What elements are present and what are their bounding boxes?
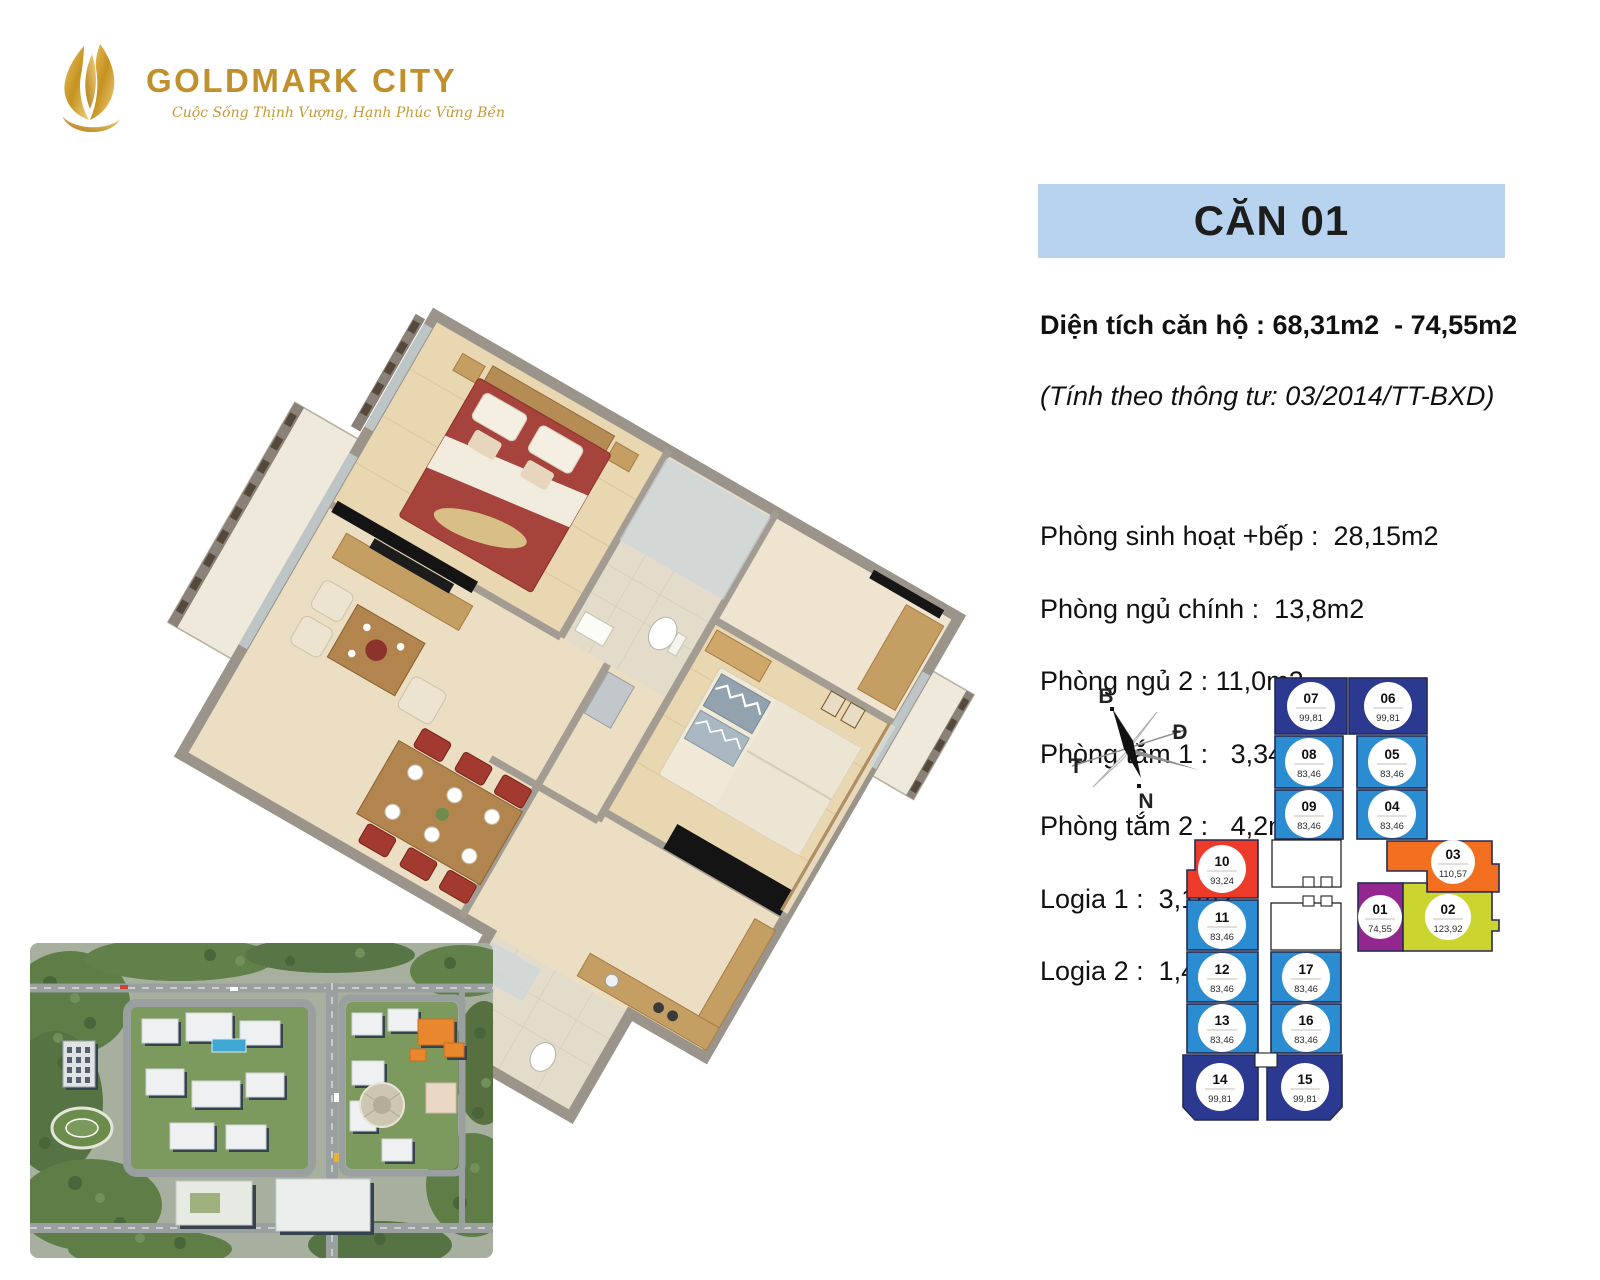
compass-south-label: N <box>1138 790 1153 813</box>
room-area-item: Phòng sinh hoạt +bếp : 28,15m2 <box>1040 518 1520 555</box>
unit-area: 110,57 <box>1439 869 1467 880</box>
unit-area: 83,46 <box>1380 821 1404 832</box>
unit-number: 12 <box>1214 962 1229 977</box>
unit-number: 17 <box>1298 962 1313 977</box>
unit-number: 07 <box>1303 691 1318 706</box>
unit-area: 93,24 <box>1210 876 1234 887</box>
school-building <box>176 1181 256 1229</box>
total-area-line: Diện tích căn hộ : 68,31m2 - 74,55m2 <box>1040 308 1520 342</box>
unit-10: 1093,24 <box>1187 840 1258 898</box>
swimming-pool <box>212 1039 246 1052</box>
brand-tagline: Cuộc Sống Thịnh Vượng, Hạnh Phúc Vững Bề… <box>172 105 505 121</box>
unit-number: 01 <box>1372 902 1388 917</box>
site-aerial-map <box>30 943 493 1258</box>
unit-12: 1283,46 <box>1187 952 1258 1002</box>
unit-02: 02123,92 <box>1403 883 1499 951</box>
room-area-item: Phòng ngủ chính : 13,8m2 <box>1040 591 1520 628</box>
corridor-end <box>1255 1053 1277 1067</box>
elevator <box>1321 896 1332 906</box>
office-building <box>63 1041 98 1090</box>
unit-number: 15 <box>1297 1072 1313 1087</box>
unit-title-bar: CĂN 01 <box>1038 184 1505 258</box>
unit-number: 14 <box>1212 1072 1228 1087</box>
unit-area: 83,46 <box>1294 1035 1318 1046</box>
unit-04: 0483,46 <box>1357 790 1427 839</box>
unit-number: 13 <box>1214 1013 1230 1028</box>
unit-11: 1183,46 <box>1187 900 1258 950</box>
brand-name: GOLDMARK CITY <box>146 62 505 100</box>
lobby-core-lower <box>1271 903 1341 950</box>
unit-number: 05 <box>1384 747 1400 762</box>
unit-area: 123,92 <box>1433 924 1462 935</box>
unit-area: 83,46 <box>1380 769 1404 780</box>
unit-area: 99,81 <box>1376 713 1400 724</box>
brand-logo: GOLDMARK CITY Cuộc Sống Thịnh Vượng, Hạn… <box>52 36 505 136</box>
unit-08: 0883,46 <box>1275 736 1343 788</box>
unit-09: 0983,46 <box>1275 790 1343 839</box>
unit-number: 16 <box>1298 1013 1314 1028</box>
unit-13: 1383,46 <box>1187 1004 1258 1053</box>
unit-15: 1599,81 <box>1267 1055 1342 1120</box>
unit-area: 83,46 <box>1210 1035 1234 1046</box>
compass-west-label: T <box>1070 755 1083 778</box>
unit-16: 1683,46 <box>1271 1004 1341 1053</box>
unit-area: 99,81 <box>1208 1094 1232 1105</box>
unit-number: 03 <box>1445 847 1461 862</box>
brand-text-block: GOLDMARK CITY Cuộc Sống Thịnh Vượng, Hạn… <box>146 36 505 121</box>
unit-06: 0699,81 <box>1349 678 1427 734</box>
elevator <box>1303 896 1314 906</box>
lotus-logo-icon <box>52 36 132 136</box>
unit-area: 83,46 <box>1210 932 1234 943</box>
unit-area: 99,81 <box>1299 713 1323 724</box>
unit-01: 0174,55 <box>1358 883 1403 951</box>
regulation-line: (Tính theo thông tư: 03/2014/TT-BXD) <box>1040 378 1520 414</box>
unit-number: 10 <box>1214 854 1229 869</box>
unit-17: 1783,46 <box>1271 952 1341 1002</box>
mall-building <box>276 1179 374 1235</box>
unit-05: 0583,46 <box>1357 736 1427 788</box>
unit-area: 83,46 <box>1210 984 1234 995</box>
unit-14: 1499,81 <box>1183 1055 1258 1120</box>
unit-area: 99,81 <box>1293 1094 1317 1105</box>
unit-number: 04 <box>1384 799 1400 814</box>
elevator <box>1321 877 1332 887</box>
unit-area: 74,55 <box>1368 924 1392 935</box>
unit-number: 06 <box>1380 691 1396 706</box>
unit-07: 0799,81 <box>1275 678 1347 734</box>
floor-plate-keyplan: 0799,810699,810883,460583,460983,460483,… <box>1165 655 1565 1135</box>
unit-area: 83,46 <box>1297 821 1321 832</box>
elevator <box>1303 877 1314 887</box>
unit-title: CĂN 01 <box>1194 197 1349 245</box>
unit-area: 83,46 <box>1294 984 1318 995</box>
compass-north-label: B <box>1098 685 1113 708</box>
unit-number: 08 <box>1301 747 1317 762</box>
page: GOLDMARK CITY Cuộc Sống Thịnh Vượng, Hạn… <box>0 0 1600 1280</box>
unit-area: 83,46 <box>1297 769 1321 780</box>
unit-number: 09 <box>1301 799 1316 814</box>
unit-number: 02 <box>1440 902 1455 917</box>
unit-number: 11 <box>1215 910 1230 925</box>
